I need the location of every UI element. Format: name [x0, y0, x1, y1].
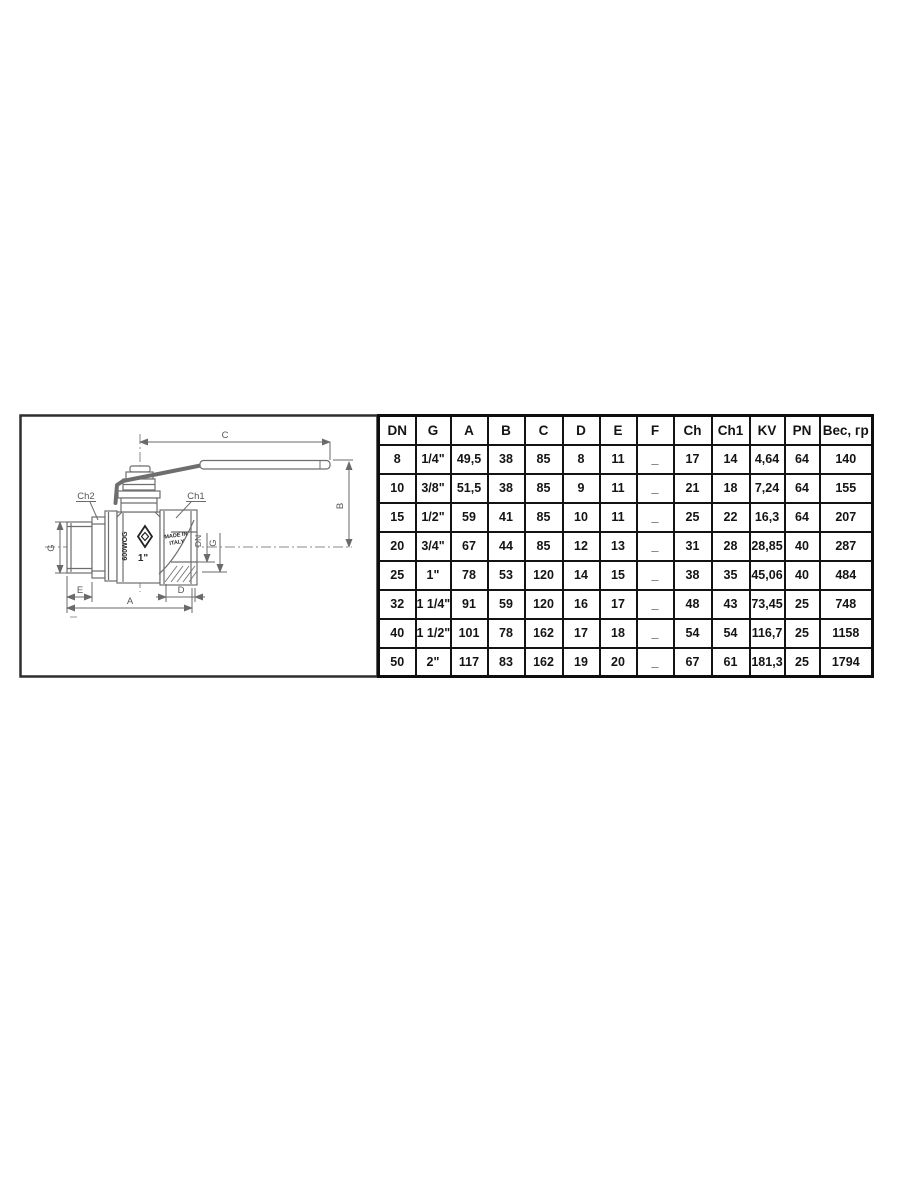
- table-cell: 40: [785, 532, 820, 561]
- table-cell: 40: [785, 561, 820, 590]
- table-cell: 41: [488, 503, 525, 532]
- table-cell: 10: [379, 474, 416, 503]
- table-cell: 3/4": [416, 532, 451, 561]
- hex-nut-ch2: [92, 517, 105, 578]
- table-cell: _: [637, 648, 674, 677]
- dim-label-a: A: [127, 596, 134, 607]
- table-cell: 54: [674, 619, 712, 648]
- table-cell: 48: [674, 590, 712, 619]
- table-cell: 38: [488, 474, 525, 503]
- table-cell: 83: [488, 648, 525, 677]
- table-cell: 1158: [820, 619, 873, 648]
- callout-label-ch1: Ch1: [187, 491, 204, 502]
- table-cell: 13: [600, 532, 637, 561]
- table-cell: 2": [416, 648, 451, 677]
- table-cell: 25: [674, 503, 712, 532]
- table-cell: 28: [712, 532, 750, 561]
- header-cell: F: [637, 416, 674, 445]
- table-cell: 31: [674, 532, 712, 561]
- table-cell: 17: [674, 445, 712, 474]
- table-cell: 12: [563, 532, 600, 561]
- table-cell: 116,7: [750, 619, 785, 648]
- header-cell: Ch: [674, 416, 712, 445]
- dim-label-d: D: [178, 585, 185, 596]
- scanned-spec-sheet: 600WOG 1" MADE IN ITALY: [0, 0, 900, 1200]
- table-cell: 484: [820, 561, 873, 590]
- table-cell: 38: [488, 445, 525, 474]
- table-cell: 8: [563, 445, 600, 474]
- table-cell: 67: [674, 648, 712, 677]
- header-cell: KV: [750, 416, 785, 445]
- table-cell: 8: [379, 445, 416, 474]
- table-cell: 11: [600, 474, 637, 503]
- dim-label-dn: DN: [193, 535, 203, 547]
- table-cell: 85: [525, 445, 563, 474]
- table-cell: 162: [525, 619, 563, 648]
- content-block: 600WOG 1" MADE IN ITALY: [19, 414, 870, 678]
- table-cell: 14: [712, 445, 750, 474]
- table-cell: 1 1/4": [416, 590, 451, 619]
- table-row: 321 1/4"91591201617_484373,4525748: [379, 590, 873, 619]
- table-cell: _: [637, 503, 674, 532]
- table-row: 103/8"51,53885911_21187,2464155: [379, 474, 873, 503]
- dim-label-c: C: [222, 430, 229, 441]
- table-cell: 4,64: [750, 445, 785, 474]
- table-cell: 21: [674, 474, 712, 503]
- table-cell: 85: [525, 532, 563, 561]
- header-cell: DN: [379, 416, 416, 445]
- body-flange: [105, 511, 117, 581]
- table-cell: 11: [600, 445, 637, 474]
- table-cell: 25: [785, 619, 820, 648]
- ball-valve-technical-drawing: 600WOG 1" MADE IN ITALY: [19, 414, 379, 678]
- table-cell: 91: [451, 590, 488, 619]
- table-cell: 64: [785, 474, 820, 503]
- body-neck: [121, 498, 157, 512]
- table-cell: 9: [563, 474, 600, 503]
- table-cell: 3/8": [416, 474, 451, 503]
- table-cell: 120: [525, 561, 563, 590]
- table-cell: 207: [820, 503, 873, 532]
- table-cell: 101: [451, 619, 488, 648]
- table-row: 151/2"5941851011_252216,364207: [379, 503, 873, 532]
- table-cell: 15: [600, 561, 637, 590]
- table-cell: 38: [674, 561, 712, 590]
- table-cell: 49,5: [451, 445, 488, 474]
- bonnet-plate: [118, 491, 160, 498]
- table-cell: _: [637, 474, 674, 503]
- table-cell: 181,3: [750, 648, 785, 677]
- table-cell: 25: [785, 590, 820, 619]
- table-cell: 17: [563, 619, 600, 648]
- table-cell: 40: [379, 619, 416, 648]
- table-cell: _: [637, 561, 674, 590]
- table-cell: 18: [712, 474, 750, 503]
- table-cell: 162: [525, 648, 563, 677]
- header-cell: G: [416, 416, 451, 445]
- table-cell: 117: [451, 648, 488, 677]
- header-cell: Вес, гр: [820, 416, 873, 445]
- valve-spec-table: DNGABCDEFChCh1KVPNВес, гр 81/4"49,538858…: [377, 414, 874, 678]
- table-cell: 59: [451, 503, 488, 532]
- table-cell: _: [637, 619, 674, 648]
- table-cell: 1 1/2": [416, 619, 451, 648]
- table-cell: 1/2": [416, 503, 451, 532]
- rating-mark: 600WOG: [122, 531, 129, 561]
- table-cell: 15: [379, 503, 416, 532]
- header-cell: B: [488, 416, 525, 445]
- table-cell: 44: [488, 532, 525, 561]
- table-cell: 20: [379, 532, 416, 561]
- table-cell: 54: [712, 619, 750, 648]
- table-cell: 78: [488, 619, 525, 648]
- dim-label-b: B: [335, 503, 346, 509]
- spec-table-header: DNGABCDEFChCh1KVPNВес, гр: [379, 416, 873, 445]
- table-cell: 73,45: [750, 590, 785, 619]
- table-cell: 35: [712, 561, 750, 590]
- table-cell: 59: [488, 590, 525, 619]
- handle-grip: [200, 461, 330, 470]
- table-cell: 67: [451, 532, 488, 561]
- table-row: 401 1/2"101781621718_5454116,7251158: [379, 619, 873, 648]
- table-cell: 28,85: [750, 532, 785, 561]
- table-cell: 51,5: [451, 474, 488, 503]
- table-cell: 18: [600, 619, 637, 648]
- table-cell: 140: [820, 445, 873, 474]
- header-cell: A: [451, 416, 488, 445]
- dim-label-g-right: G: [208, 539, 219, 546]
- table-row: 502"117831621920_6761181,3251794: [379, 648, 873, 677]
- table-cell: 85: [525, 503, 563, 532]
- table-row: 203/4"6744851213_312828,8540287: [379, 532, 873, 561]
- table-row: 81/4"49,53885811_17144,6464140: [379, 445, 873, 474]
- stem-cap: [130, 466, 150, 472]
- table-cell: 50: [379, 648, 416, 677]
- table-cell: 22: [712, 503, 750, 532]
- header-cell: D: [563, 416, 600, 445]
- table-cell: 11: [600, 503, 637, 532]
- table-cell: 78: [451, 561, 488, 590]
- table-cell: 10: [563, 503, 600, 532]
- table-cell: 25: [785, 648, 820, 677]
- header-cell: Ch1: [712, 416, 750, 445]
- table-cell: 287: [820, 532, 873, 561]
- table-cell: _: [637, 445, 674, 474]
- spec-table-body: 81/4"49,53885811_17144,6464140103/8"51,5…: [379, 445, 873, 677]
- table-cell: _: [637, 590, 674, 619]
- table-cell: 64: [785, 503, 820, 532]
- callout-label-ch2: Ch2: [77, 491, 94, 502]
- table-cell: 120: [525, 590, 563, 619]
- header-cell: C: [525, 416, 563, 445]
- dim-label-g-left: G: [46, 544, 57, 551]
- table-row: 251"78531201415_383545,0640484: [379, 561, 873, 590]
- table-cell: 45,06: [750, 561, 785, 590]
- table-cell: 14: [563, 561, 600, 590]
- table-cell: 43: [712, 590, 750, 619]
- header-cell: PN: [785, 416, 820, 445]
- table-cell: 19: [563, 648, 600, 677]
- header-cell: E: [600, 416, 637, 445]
- table-cell: 155: [820, 474, 873, 503]
- table-cell: 32: [379, 590, 416, 619]
- table-cell: 25: [379, 561, 416, 590]
- table-cell: 64: [785, 445, 820, 474]
- table-cell: 16: [563, 590, 600, 619]
- table-cell: 748: [820, 590, 873, 619]
- dim-label-e: E: [77, 585, 83, 596]
- table-cell: 16,3: [750, 503, 785, 532]
- table-cell: 1794: [820, 648, 873, 677]
- table-cell: 7,24: [750, 474, 785, 503]
- table-cell: 20: [600, 648, 637, 677]
- table-cell: 85: [525, 474, 563, 503]
- table-cell: 53: [488, 561, 525, 590]
- table-cell: 17: [600, 590, 637, 619]
- table-cell: 1": [416, 561, 451, 590]
- table-cell: 1/4": [416, 445, 451, 474]
- size-mark: 1": [138, 553, 149, 564]
- table-row: DNGABCDEFChCh1KVPNВес, гр: [379, 416, 873, 445]
- table-cell: 61: [712, 648, 750, 677]
- table-cell: _: [637, 532, 674, 561]
